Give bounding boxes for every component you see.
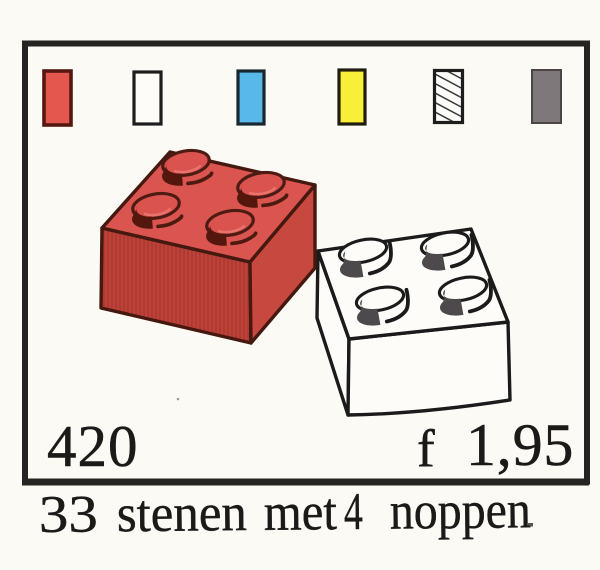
svg-text:1,95: 1,95 <box>466 412 574 478</box>
svg-text:33: 33 <box>39 485 99 544</box>
svg-text:4: 4 <box>344 483 364 541</box>
svg-text:met: met <box>264 483 338 542</box>
svg-text:noppen: noppen <box>390 481 532 540</box>
svg-text:stenen: stenen <box>117 484 248 543</box>
svg-text:f: f <box>417 420 435 478</box>
svg-text:420: 420 <box>47 413 139 479</box>
